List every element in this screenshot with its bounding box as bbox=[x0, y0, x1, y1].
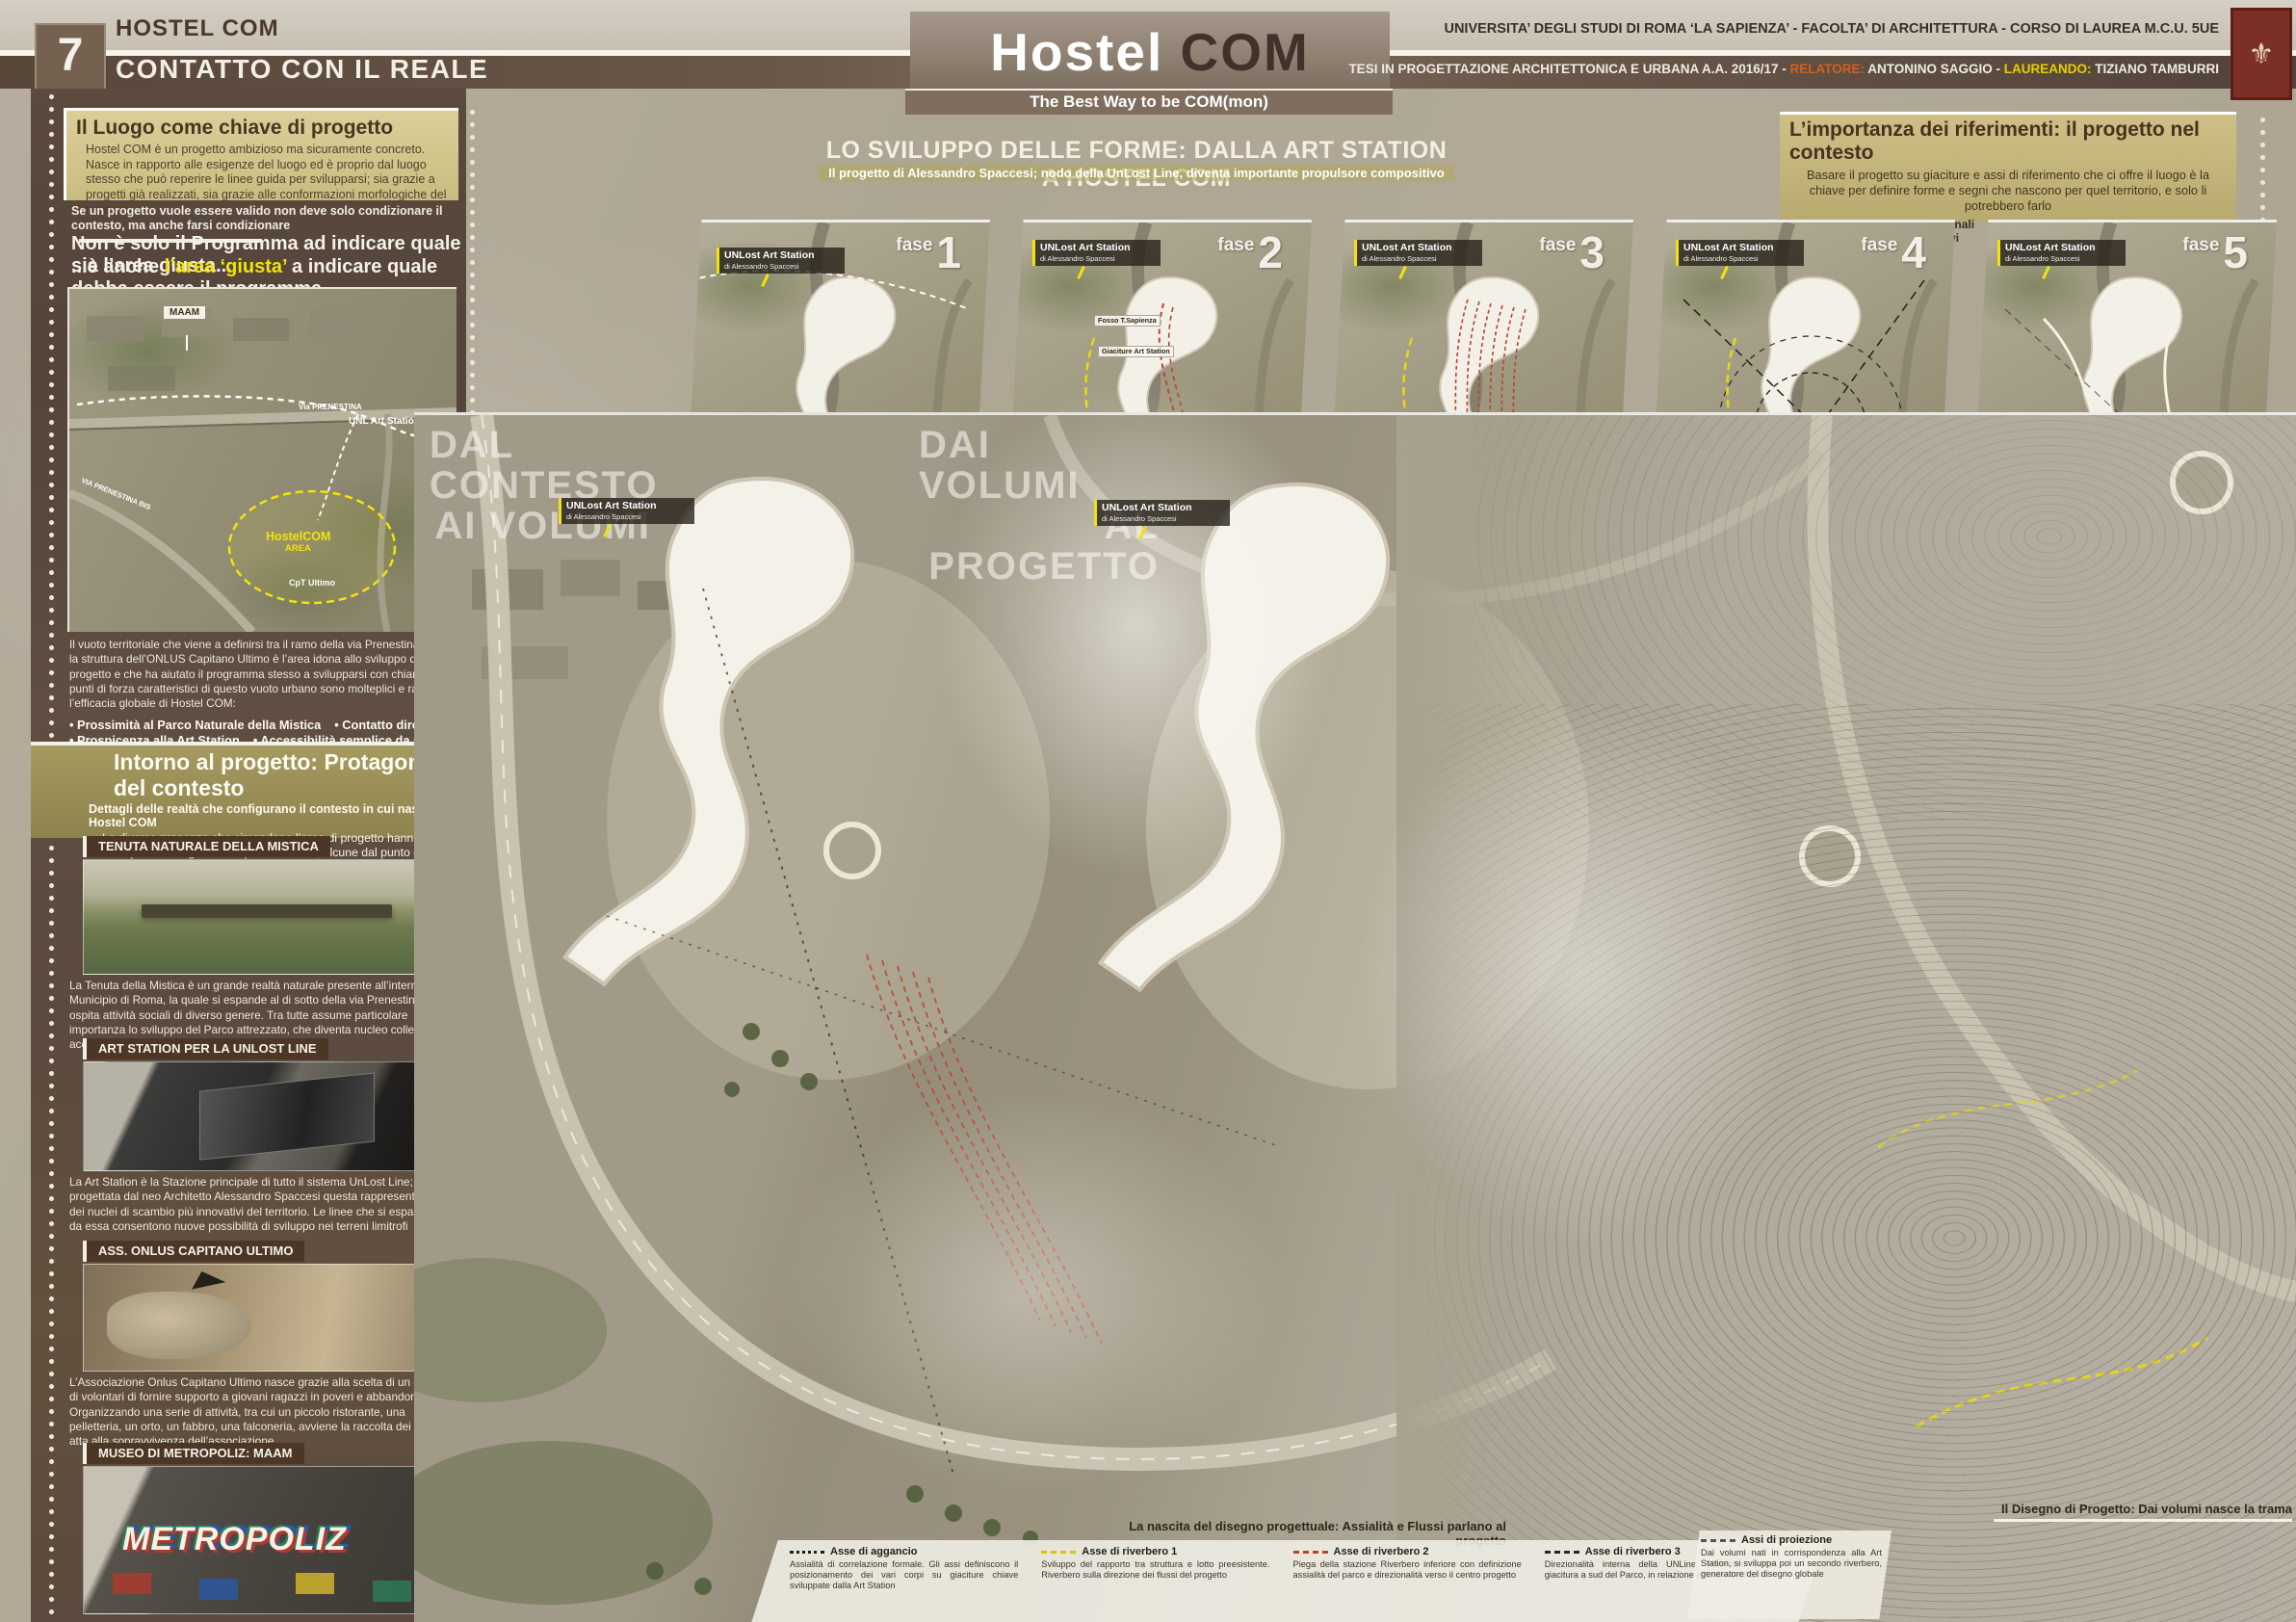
thesis-credit: TESI IN PROGETTAZIONE ARCHITETTONICA E U… bbox=[1021, 62, 2219, 76]
photo-maam: METROPOLIZ bbox=[83, 1466, 458, 1614]
legend-item-riverbero2: Asse di riverbero 2 Piega della stazione… bbox=[1293, 1546, 1535, 1622]
annotation-fosso: Fosso T.Sapienza bbox=[1094, 315, 1161, 327]
intro-heading: Il Luogo come chiave di progetto bbox=[76, 117, 449, 140]
section-header-maam: MUSEO DI METROPOLIZ: MAAM bbox=[83, 1443, 304, 1464]
references-body: Basare il progetto su giaciture e assi d… bbox=[1789, 168, 2227, 214]
station-label: UNLost Art Station di Alessandro Spacces… bbox=[1032, 240, 1161, 266]
caption-disegno-progetto: Il Disegno di Progetto: Dai volumi nasce… bbox=[1994, 1502, 2292, 1522]
station-label: UNLost Art Station di Alessandro Spacces… bbox=[1354, 240, 1482, 266]
dashed-black-line-icon bbox=[1545, 1551, 1579, 1554]
legend-item-aggancio: Asse di aggancio Assialità di correlazio… bbox=[790, 1546, 1031, 1622]
section-body-onlus: L’Associazione Onlus Capitano Ultimo nas… bbox=[69, 1375, 460, 1450]
photo-artstation bbox=[83, 1061, 458, 1171]
phase1-label: fase1 bbox=[896, 226, 961, 278]
intro-box: Il Luogo come chiave di progetto Hostel … bbox=[64, 108, 458, 200]
caption-underline bbox=[1994, 1519, 2292, 1522]
dotted-divider-mid bbox=[469, 108, 476, 416]
relatore-name: ANTONINO SAGGIO - bbox=[1865, 62, 2004, 76]
hostelcom-area-sub: AREA bbox=[285, 543, 311, 554]
fog-overlay bbox=[780, 1089, 1281, 1494]
intorno-band: Intorno al progetto: Protagonisti del co… bbox=[31, 742, 466, 838]
masterplan-map: DAL CONTESTO AI VOLUMI DAI VOLUMI AL PRO… bbox=[414, 412, 2296, 1622]
dashed-red-line-icon bbox=[1293, 1551, 1328, 1554]
graffiti-patch bbox=[373, 1581, 411, 1602]
graffiti-patch bbox=[296, 1573, 334, 1594]
dotted-divider-right bbox=[2259, 116, 2266, 220]
station-label: UNLost Art Station di Alessandro Spacces… bbox=[717, 248, 845, 274]
laureando-label: LAUREANDO: bbox=[2004, 62, 2092, 76]
station-label: UNLost Art Station di Alessandro Spacces… bbox=[1997, 240, 2126, 266]
phase2-label: fase2 bbox=[1217, 226, 1283, 278]
ruin-building bbox=[142, 904, 392, 918]
station-label: UNLost Art Station di Alessandro Spacces… bbox=[1094, 500, 1230, 526]
hostelcom-area-label: HostelCOM bbox=[266, 530, 330, 543]
photo-mistica bbox=[83, 859, 458, 975]
section-header-onlus: ASS. ONLUS CAPITANO ULTIMO bbox=[83, 1241, 304, 1262]
station-label: UNLost Art Station di Alessandro Spacces… bbox=[1676, 240, 1804, 266]
photo-onlus bbox=[83, 1264, 458, 1372]
relatore-label: RELATORE: bbox=[1790, 62, 1865, 76]
section-body-artstation: La Art Station è la Stazione principale … bbox=[69, 1175, 460, 1234]
sapienza-logo: ⚜ bbox=[2231, 8, 2292, 100]
section-header-artstation: ART STATION PER LA UNLOST LINE bbox=[83, 1038, 328, 1060]
site-map: MAAM Via PRENESTINA VIA PRENESTINA BIS U… bbox=[67, 287, 457, 632]
falcon-icon bbox=[189, 1267, 226, 1289]
annotation-giaciture: Giaciture Art Station bbox=[1098, 346, 1174, 357]
glass-facade bbox=[199, 1072, 375, 1160]
thesis-prefix: TESI IN PROGETTAZIONE ARCHITETTONICA E U… bbox=[1348, 62, 1789, 76]
phase5-label: fase5 bbox=[2182, 226, 2248, 278]
page-number: 7 bbox=[35, 23, 106, 91]
dashed-yellow-line-icon bbox=[1041, 1551, 1076, 1554]
site-map-graphics bbox=[69, 289, 457, 632]
graffiti-patch bbox=[113, 1573, 151, 1594]
dotted-black-line-icon bbox=[790, 1551, 824, 1554]
cpt-ultimo-label: CpT Ultimo bbox=[289, 578, 335, 588]
dashed-gray-line-icon bbox=[1701, 1539, 1735, 1542]
vuoto-body: Il vuoto territoriale che viene a defini… bbox=[69, 638, 460, 712]
axes-legend: Asse di aggancio Assialità di correlazio… bbox=[751, 1540, 1825, 1622]
sapienza-emblem-icon: ⚜ bbox=[2249, 38, 2275, 71]
dotted-divider-left bbox=[48, 92, 55, 1614]
presentation-board: 7 HOSTEL COM CONTATTO CON IL REALE Hoste… bbox=[0, 0, 2296, 1622]
phase3-label: fase3 bbox=[1539, 226, 1605, 278]
project-name: HOSTEL COM bbox=[116, 15, 693, 42]
section-header-mistica: TENUTA NATURALE DELLA MISTICA bbox=[83, 836, 330, 857]
laureando-name: TIZIANO TAMBURRI bbox=[2092, 62, 2219, 76]
legend-item-proiezione: Assi di proiezione Dai volumi nati in co… bbox=[1687, 1530, 1892, 1619]
watermark-dal-contesto: DAL CONTESTO AI VOLUMI bbox=[430, 425, 651, 546]
references-heading: L’importanza dei riferimenti: il progett… bbox=[1789, 118, 2227, 165]
highlight-area-giusta: l’area ‘giusta’ bbox=[165, 256, 287, 277]
references-box: L’importanza dei riferimenti: il progett… bbox=[1780, 112, 2236, 222]
station-label: UNLost Art Station di Alessandro Spacces… bbox=[559, 498, 694, 524]
vuoto-block: Il vuoto territoriale che viene a defini… bbox=[69, 638, 460, 749]
maam-map-label: MAAM bbox=[164, 306, 205, 319]
stone-monument bbox=[107, 1292, 251, 1359]
graffiti-text: METROPOLIZ bbox=[122, 1521, 347, 1558]
graffiti-patch bbox=[199, 1579, 238, 1600]
university-credit: UNIVERSITA’ DEGLI STUDI DI ROMA ‘LA SAPI… bbox=[1021, 21, 2219, 37]
fog-overlay bbox=[1358, 704, 1801, 1243]
center-subheading: Il progetto di Alessandro Spaccesi; nodo… bbox=[819, 166, 1454, 180]
legend-item-riverbero1: Asse di riverbero 1 Sviluppo del rapport… bbox=[1041, 1546, 1283, 1622]
intorno-sub: Dettagli delle realtà che configurano il… bbox=[89, 802, 466, 829]
via-prenestina-label: Via PRENESTINA bbox=[299, 403, 362, 411]
phase4-label: fase4 bbox=[1861, 226, 1926, 278]
page-subtitle: The Best Way to be COM(mon) bbox=[905, 89, 1393, 115]
chapter-title: CONTATTO CON IL REALE bbox=[116, 54, 790, 85]
unl-art-station-label: UNL Art Station bbox=[349, 416, 420, 427]
